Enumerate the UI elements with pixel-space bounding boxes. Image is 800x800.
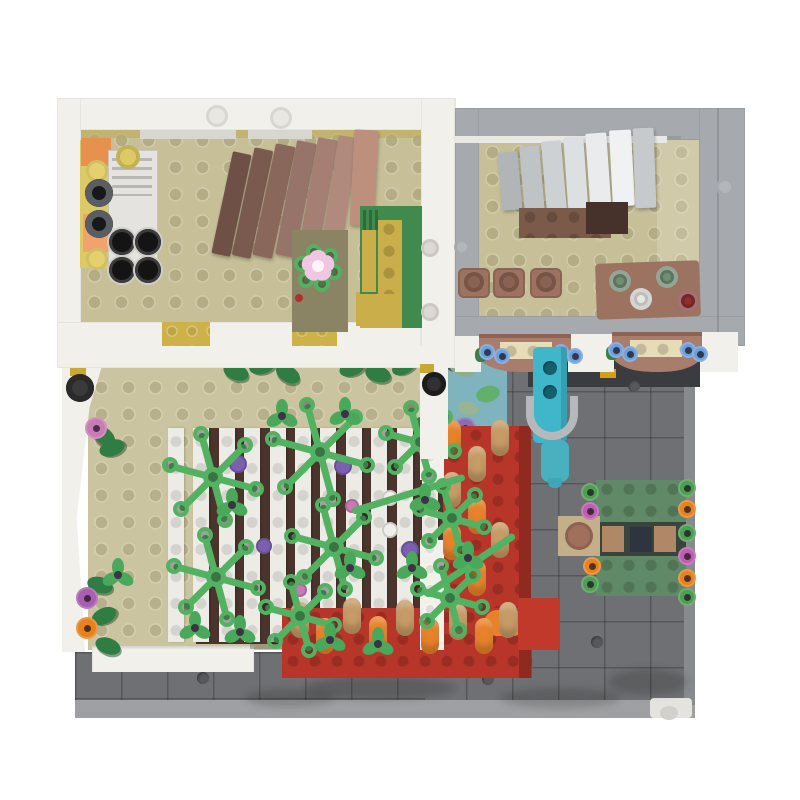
bench-flower (581, 502, 599, 520)
bench-south (596, 556, 686, 596)
trefoil-leaves (215, 488, 249, 522)
vine-end-ring (283, 574, 299, 590)
trefoil-leaves (223, 615, 257, 649)
vine-center-ring (203, 467, 223, 487)
plaza-stud (197, 672, 209, 684)
vine-end-ring (173, 501, 189, 517)
awning-flower (692, 346, 708, 362)
bench-flower (678, 547, 696, 565)
stove-burner (135, 229, 161, 255)
flower-center (84, 595, 91, 602)
vine-star (159, 423, 267, 531)
rooms-divider-wall (421, 98, 455, 368)
vine-end-ring (419, 613, 435, 629)
bench-slat-a (602, 526, 624, 552)
sofa-yellow-side (362, 230, 376, 292)
awning-flower (567, 348, 583, 364)
vine-end-ring (265, 431, 281, 447)
cooking-pot (85, 179, 113, 207)
bottle (609, 270, 631, 292)
bar-stool (493, 268, 525, 298)
stool-seat (499, 272, 519, 292)
right-room-west-wall (455, 108, 479, 346)
trefoil-center (191, 624, 199, 632)
vine-end-ring (197, 527, 213, 543)
trefoil-center (421, 496, 429, 504)
flower-center (684, 594, 691, 601)
stove-burner (109, 229, 135, 255)
vine-end-ring (476, 519, 492, 535)
flower-center (627, 351, 634, 358)
trefoil-leaves (101, 558, 135, 592)
stove-burner (135, 257, 161, 283)
vine-center-ring (310, 442, 330, 462)
pump-spout (541, 440, 569, 482)
vine-end-ring (368, 550, 384, 566)
flower-center (587, 489, 594, 496)
bench-slat-b (654, 526, 676, 552)
vine-end-ring (387, 459, 403, 475)
terrace-flower (85, 417, 107, 439)
vine-center-ring (440, 588, 460, 608)
bench-flower (678, 588, 696, 606)
vine-end-ring (317, 583, 333, 599)
trefoil-center (374, 640, 382, 648)
flower-center (84, 625, 91, 632)
window-yellow-a (162, 322, 210, 346)
trefoil-center (326, 636, 334, 644)
trefoil-leaves (328, 397, 362, 431)
vine-center-ring (442, 508, 462, 528)
flower-center (684, 530, 691, 537)
bench-center-dark (630, 527, 652, 552)
flower-center (589, 563, 596, 570)
left-room-north-wall (57, 98, 456, 130)
bar-stool (530, 268, 562, 298)
kitchen-plate-b (86, 248, 108, 270)
trefoil-center (464, 554, 472, 562)
bench-flower (581, 483, 599, 501)
wall-stud (454, 239, 470, 255)
vine-center-ring (290, 606, 310, 626)
wall-stud (421, 239, 439, 257)
vine-end-ring (162, 457, 178, 473)
sofa-yellow-seat (378, 220, 402, 294)
stool-seat (536, 272, 556, 292)
flower-center (587, 508, 594, 515)
vine-end-ring (299, 397, 315, 413)
trefoil-leaves (408, 483, 442, 517)
flower-center (613, 347, 620, 354)
vine-end-ring (451, 622, 467, 638)
stove-burner (109, 257, 135, 283)
sofa-green-corner (402, 294, 422, 328)
vine-end-ring (474, 599, 490, 615)
right-room-east-wall (699, 108, 745, 346)
cooking-pot (85, 210, 113, 238)
vine-center-ring (206, 567, 226, 587)
right-wall-seam (717, 108, 719, 346)
plant-shadow (500, 688, 620, 708)
bottle (630, 288, 652, 310)
plant-shadow (245, 689, 335, 707)
white-corner-knob (660, 706, 678, 720)
trefoil-leaves (451, 541, 485, 575)
bench-north (596, 480, 686, 522)
blossom-cylinder (499, 602, 517, 638)
wall-stud (421, 303, 439, 321)
blossom-center (312, 260, 324, 272)
trefoil-center (236, 628, 244, 636)
bench-flower (678, 524, 696, 542)
terrace-flower (76, 587, 98, 609)
pump-spout-tip (548, 478, 562, 488)
wall-shelf-a (140, 130, 236, 139)
bottle (677, 290, 699, 312)
trefoil-center (278, 412, 286, 420)
stair-dark-brick (586, 202, 628, 234)
pillar-lamp (422, 372, 446, 396)
flower-center (697, 351, 704, 358)
vine-end-ring (315, 497, 331, 513)
vine-end-ring (237, 437, 253, 453)
bench-flower (678, 479, 696, 497)
side-table-top (565, 522, 593, 550)
vine-end-ring (267, 633, 283, 649)
berry (295, 294, 303, 302)
flower-center (684, 485, 691, 492)
wall-shelf-b (248, 130, 312, 139)
trefoil-center (114, 571, 122, 579)
vine-end-ring (421, 533, 437, 549)
blossom-cylinder (491, 420, 509, 456)
plaza-stud (628, 380, 640, 392)
sofa-grill (363, 210, 379, 230)
trefoil-leaves (361, 627, 395, 661)
vine-end-ring (277, 479, 293, 495)
vine-end-ring (446, 443, 462, 459)
trefoil-leaves (178, 611, 212, 645)
stair-slat (609, 129, 635, 206)
left-room-south-wall (57, 322, 421, 368)
stove-sink-plate (116, 145, 140, 169)
terrace-flower (76, 617, 98, 639)
vine-end-ring (359, 457, 375, 473)
wall-stud (716, 178, 734, 196)
flower-center (684, 506, 691, 513)
pump-hole (543, 385, 557, 399)
trefoil-leaves (333, 551, 367, 585)
plant-shadow (608, 669, 688, 695)
flower-center (572, 353, 579, 360)
trefoil-center (341, 410, 349, 418)
wall-stud (270, 107, 292, 129)
vine-end-ring (193, 426, 209, 442)
pink-blossom (300, 248, 336, 284)
pump-hole (543, 361, 557, 375)
terrace-lamp (66, 374, 94, 402)
trefoil-center (228, 501, 236, 509)
bench-flower (678, 500, 696, 518)
awning-flower (479, 344, 495, 360)
trefoil-leaves (395, 551, 429, 585)
flower-center (587, 581, 594, 588)
flower-center (499, 353, 506, 360)
flower-center (93, 425, 100, 432)
flower-center (484, 349, 491, 356)
trefoil-leaves (265, 399, 299, 433)
bottle (656, 266, 678, 288)
plaza-stud (591, 636, 603, 648)
vine-end-ring (467, 487, 483, 503)
bar-stool (458, 268, 490, 298)
bench-flower (583, 557, 601, 575)
left-room-west-wall (57, 98, 81, 348)
vine-end-ring (403, 400, 419, 416)
trefoil-center (408, 564, 416, 572)
stool-seat (464, 272, 484, 292)
flower-center (684, 553, 691, 560)
flower-center (685, 347, 692, 354)
vine-end-ring (433, 558, 449, 574)
flower-center (684, 575, 691, 582)
trefoil-leaves (313, 623, 347, 657)
awning-flower (622, 346, 638, 362)
red-block (518, 598, 560, 650)
trefoil-center (346, 564, 354, 572)
bench-flower (581, 575, 599, 593)
white-pillar (420, 345, 448, 459)
vine-end-ring (238, 539, 254, 555)
awning-flower (494, 348, 510, 364)
bench-flower (678, 569, 696, 587)
stage (0, 0, 800, 800)
wall-stud (206, 105, 228, 127)
stair-slat (633, 128, 657, 209)
